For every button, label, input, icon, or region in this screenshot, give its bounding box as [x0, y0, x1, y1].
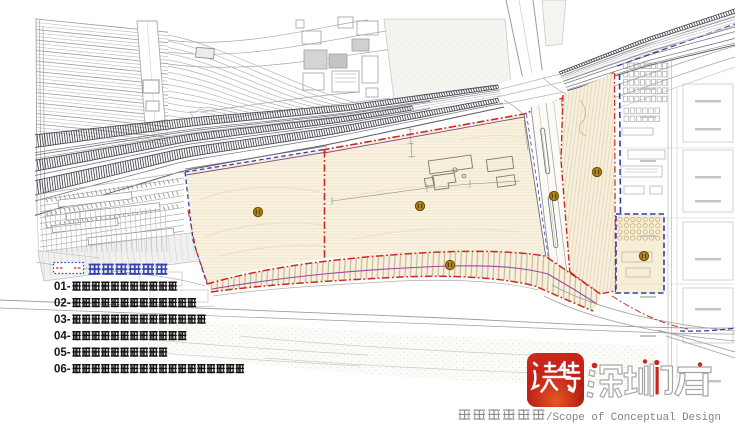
svg-text:05-: 05- [54, 347, 71, 359]
svg-text:/Scope of Conceptual Design: /Scope of Conceptual Design [546, 412, 721, 424]
svg-text:06-: 06- [54, 364, 71, 376]
svg-text:02-: 02- [54, 298, 71, 310]
svg-text:01-: 01- [54, 281, 71, 293]
svg-text:03-: 03- [54, 314, 71, 326]
svg-text:04-: 04- [54, 331, 71, 343]
